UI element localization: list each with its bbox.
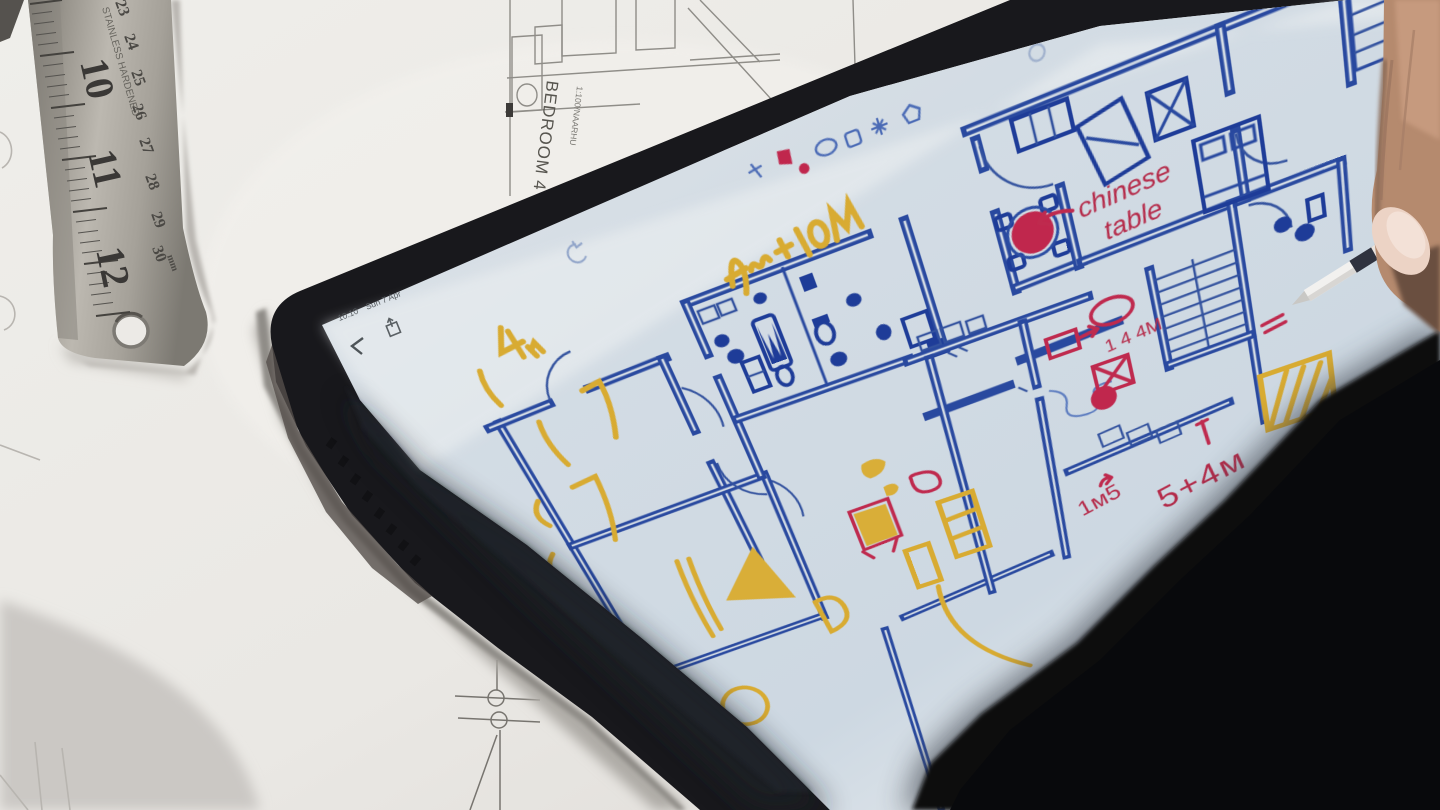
- svg-text:10:10: 10:10: [336, 306, 360, 323]
- svg-text:Sun 7 Apr: Sun 7 Apr: [364, 288, 403, 311]
